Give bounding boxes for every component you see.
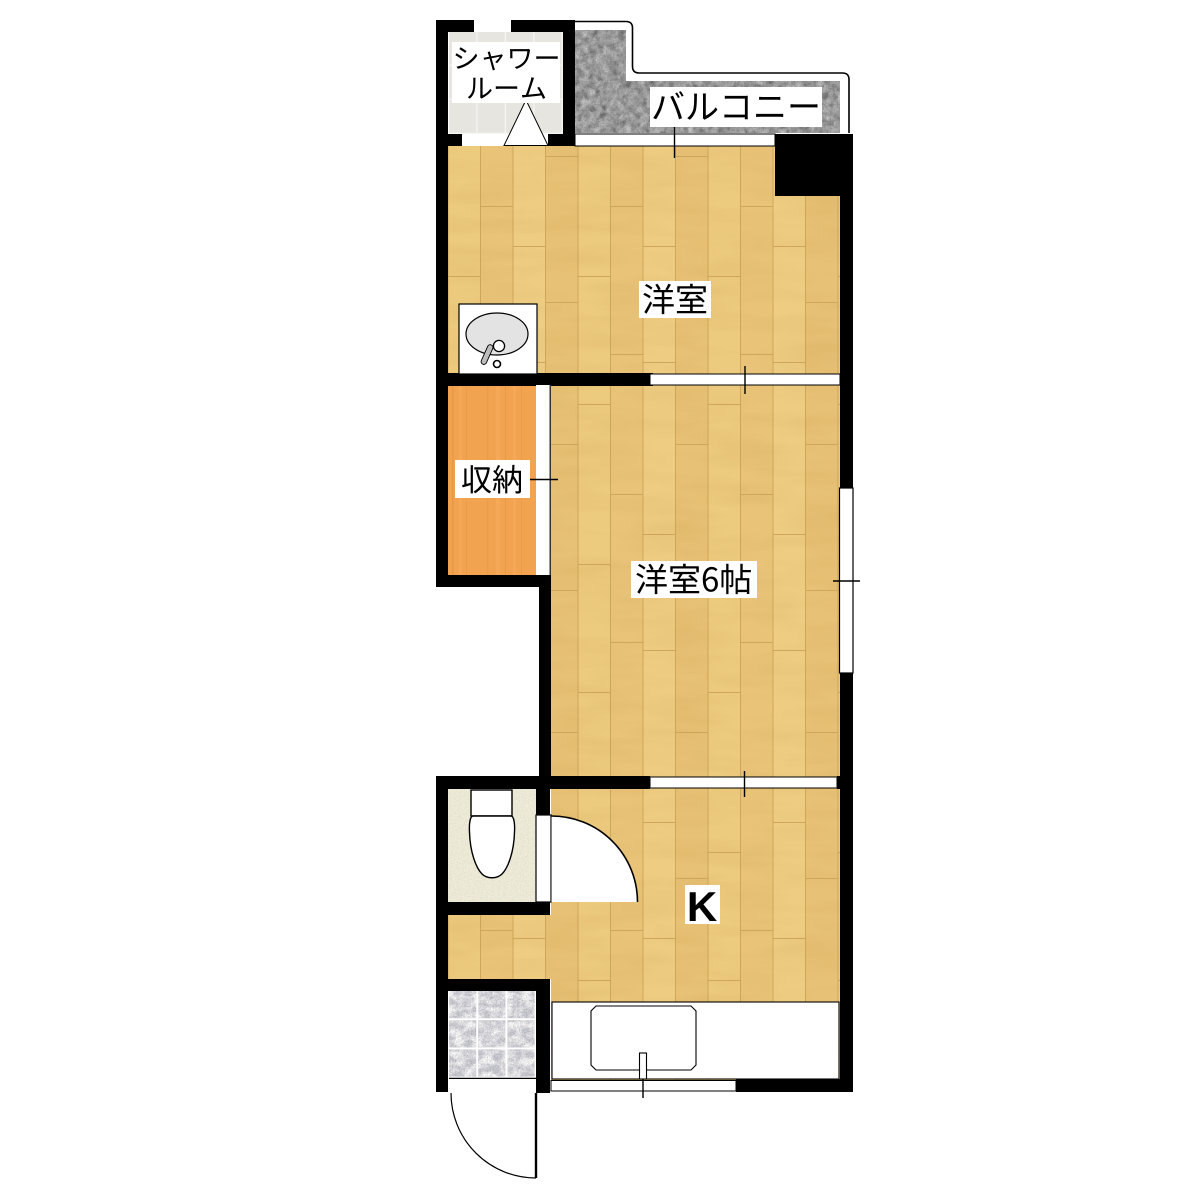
svg-text:K: K [687, 883, 717, 930]
